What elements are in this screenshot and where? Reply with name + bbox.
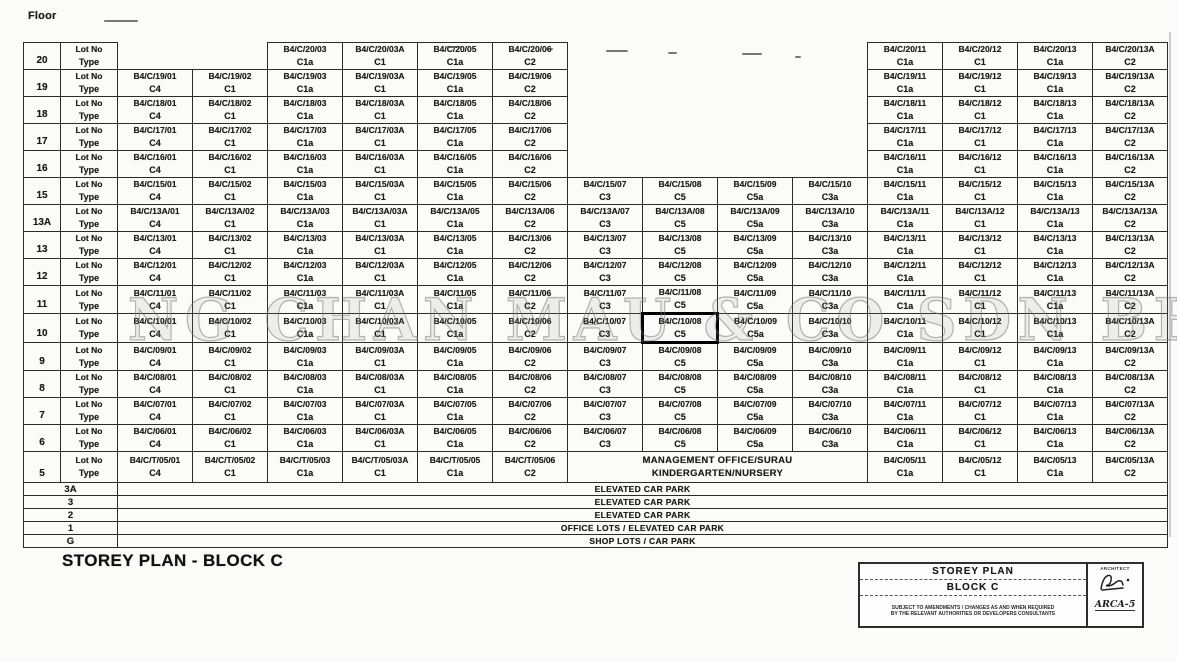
empty-cell — [568, 97, 643, 124]
unit-cell: B4/C/11/07C3 — [568, 286, 643, 314]
lot-number: B4/C/15/07 — [568, 178, 642, 191]
unit-type: C2 — [493, 328, 567, 341]
unit-type: C3a — [793, 438, 867, 451]
unit-type: C1 — [193, 411, 267, 424]
unit-cell: B4/C/06/09C5a — [718, 425, 793, 452]
lot-number: B4/C/07/05 — [418, 398, 492, 411]
unit-cell: B4/C/08/02C1 — [193, 371, 268, 398]
management-line-1: MANAGEMENT OFFICE/SURAU — [568, 454, 867, 467]
unit-type: C3 — [568, 384, 642, 397]
lot-number: B4/C/13A/11 — [868, 205, 942, 218]
unit-type: C2 — [1093, 83, 1167, 96]
floor-row-16: 16Lot NoTypeB4/C/16/01C4B4/C/16/02C1B4/C… — [24, 151, 1168, 178]
unit-cell: B4/C/06/13C1a — [1018, 425, 1093, 452]
lot-number: B4/C/17/01 — [118, 124, 192, 137]
unit-cell: B4/C/19/13AC2 — [1093, 70, 1168, 97]
unit-type: C1a — [1018, 218, 1092, 231]
floor-number-cell: 10 — [24, 314, 61, 343]
lot-number: B4/C/18/13A — [1093, 97, 1167, 110]
lot-number: B4/C/10/09 — [719, 315, 792, 328]
unit-cell: B4/C/07/11C1a — [868, 398, 943, 425]
lot-number: B4/C/13/13 — [1018, 232, 1092, 245]
floor-number-cell: 17 — [24, 124, 61, 151]
lot-number: B4/C/18/03 — [268, 97, 342, 110]
scan-mark — [104, 20, 138, 22]
lot-number: B4/C/09/02 — [193, 344, 267, 357]
lot-number: B4/C/06/03 — [268, 425, 342, 438]
unit-type: C1 — [343, 218, 417, 231]
unit-cell: B4/C/T/05/03AC1 — [343, 452, 418, 483]
unit-type: C1a — [418, 56, 492, 69]
unit-cell: B4/C/09/03AC1 — [343, 343, 418, 371]
unit-type: C4 — [118, 467, 192, 480]
empty-cell — [793, 70, 868, 97]
floor-number-cell: 16 — [24, 151, 61, 178]
unit-cell: B4/C/20/11C1a — [868, 43, 943, 70]
unit-cell: B4/C/06/10C3a — [793, 425, 868, 452]
unit-cell: B4/C/13/01C4 — [118, 232, 193, 259]
band-row-3A: 3AELEVATED CAR PARK — [24, 483, 1168, 496]
unit-cell: B4/C/08/03C1a — [268, 371, 343, 398]
lot-number: B4/C/10/11 — [868, 315, 942, 328]
unit-type: C5 — [643, 218, 717, 231]
unit-type: C1a — [1018, 300, 1092, 313]
unit-cell: B4/C/09/02C1 — [193, 343, 268, 371]
unit-cell: B4/C/20/13C1a — [1018, 43, 1093, 70]
lot-number: B4/C/13/11 — [868, 232, 942, 245]
unit-type: C2 — [1093, 218, 1167, 231]
lot-number: B4/C/06/05 — [418, 425, 492, 438]
lot-number: B4/C/12/03 — [268, 259, 342, 272]
unit-type: C1 — [943, 328, 1017, 341]
lot-number: B4/C/13/12 — [943, 232, 1017, 245]
unit-type: C1a — [418, 411, 492, 424]
unit-type: C1 — [943, 438, 1017, 451]
lot-number: B4/C/17/12 — [943, 124, 1017, 137]
lot-no-label: Lot No — [61, 124, 117, 137]
unit-cell: B4/C/15/02C1 — [193, 178, 268, 205]
unit-cell: B4/C/15/10C3a — [793, 178, 868, 205]
scan-mark — [795, 56, 801, 58]
unit-cell: B4/C/07/13AC2 — [1093, 398, 1168, 425]
lot-number: B4/C/13/03 — [268, 232, 342, 245]
scan-mark — [606, 50, 628, 52]
unit-cell: B4/C/09/05C1a — [418, 343, 493, 371]
unit-cell: B4/C/18/05C1a — [418, 97, 493, 124]
unit-type: C5 — [643, 438, 717, 451]
type-label: Type — [61, 164, 117, 177]
unit-type: C1a — [868, 137, 942, 150]
unit-cell: B4/C/13A/11C1a — [868, 205, 943, 232]
lot-number: B4/C/10/07 — [568, 315, 641, 328]
lot-number: B4/C/10/03A — [343, 315, 417, 328]
lot-number: B4/C/10/10 — [793, 315, 867, 328]
lot-number: B4/C/19/06 — [493, 70, 567, 83]
lot-number: B4/C/08/05 — [418, 371, 492, 384]
lot-number: B4/C/07/10 — [793, 398, 867, 411]
unit-type: C2 — [1093, 272, 1167, 285]
lot-number: B4/C/19/05 — [418, 70, 492, 83]
lot-number: B4/C/13A/10 — [793, 205, 867, 218]
lot-number: B4/C/13/07 — [568, 232, 642, 245]
storey-table-body: 20Lot NoTypeB4/C/20/03C1aB4/C/20/03AC1B4… — [24, 43, 1168, 548]
architect-signature-icon — [1097, 572, 1133, 599]
unit-cell: B4/C/15/03C1a — [268, 178, 343, 205]
lot-number: B4/C/10/13A — [1093, 315, 1167, 328]
unit-cell: B4/C/08/05C1a — [418, 371, 493, 398]
lot-number: B4/C/T/05/03A — [343, 454, 417, 467]
unit-cell: B4/C/16/13AC2 — [1093, 151, 1168, 178]
unit-type: C1 — [343, 83, 417, 96]
lot-number: B4/C/11/12 — [943, 287, 1017, 300]
empty-cell — [568, 124, 643, 151]
unit-type: C5 — [643, 191, 717, 204]
lot-number: B4/C/16/06 — [493, 151, 567, 164]
lot-no-label: Lot No — [61, 70, 117, 83]
unit-type: C1a — [868, 245, 942, 258]
band-label: SHOP LOTS / CAR PARK — [118, 535, 1168, 548]
unit-cell: B4/C/19/12C1 — [943, 70, 1018, 97]
lot-number: B4/C/09/01 — [118, 344, 192, 357]
lot-number: B4/C/06/06 — [493, 425, 567, 438]
lot-number: B4/C/08/06 — [493, 371, 567, 384]
lot-number: B4/C/05/13 — [1018, 454, 1092, 467]
unit-type: C1a — [268, 56, 342, 69]
unit-cell: B4/C/11/05C1a — [418, 286, 493, 314]
unit-type: C2 — [493, 137, 567, 150]
unit-cell: B4/C/08/10C3a — [793, 371, 868, 398]
unit-cell: B4/C/13A/03AC1 — [343, 205, 418, 232]
unit-cell: B4/C/05/12C1 — [943, 452, 1018, 483]
floor-row-13A: 13ALot NoTypeB4/C/13A/01C4B4/C/13A/02C1B… — [24, 205, 1168, 232]
unit-type: C2 — [1093, 137, 1167, 150]
unit-cell: B4/C/17/01C4 — [118, 124, 193, 151]
empty-cell — [643, 97, 718, 124]
lot-number: B4/C/11/05 — [418, 287, 492, 300]
unit-type: C1a — [418, 137, 492, 150]
row-labels-cell: Lot NoType — [61, 398, 118, 425]
unit-type: C2 — [493, 191, 567, 204]
unit-type: C1a — [868, 218, 942, 231]
unit-type: C1a — [418, 328, 492, 341]
floor-number-cell: 13A — [24, 205, 61, 232]
lot-number: B4/C/16/03 — [268, 151, 342, 164]
unit-cell: B4/C/18/12C1 — [943, 97, 1018, 124]
unit-type: C2 — [1093, 357, 1167, 370]
unit-cell: B4/C/06/03C1a — [268, 425, 343, 452]
lot-number: B4/C/11/07 — [568, 287, 642, 300]
unit-type: C3a — [793, 218, 867, 231]
unit-cell: B4/C/16/05C1a — [418, 151, 493, 178]
lot-number: B4/C/20/13 — [1018, 43, 1092, 56]
unit-cell: B4/C/07/10C3a — [793, 398, 868, 425]
unit-type: C1 — [193, 83, 267, 96]
title-block: STOREY PLAN BLOCK C SUBJECT TO AMENDMENT… — [858, 562, 1144, 628]
unit-type: C1a — [268, 357, 342, 370]
unit-type: C4 — [118, 411, 192, 424]
unit-type: C1a — [868, 357, 942, 370]
floor-row-10: 10Lot NoTypeB4/C/10/01C4B4/C/10/02C1B4/C… — [24, 314, 1168, 343]
lot-number: B4/C/17/05 — [418, 124, 492, 137]
unit-cell: B4/C/08/07C3 — [568, 371, 643, 398]
lot-number: B4/C/08/07 — [568, 371, 642, 384]
unit-type: C1 — [343, 328, 417, 341]
unit-type: C5 — [643, 272, 717, 285]
unit-type: C1 — [193, 245, 267, 258]
unit-cell: B4/C/07/03C1a — [268, 398, 343, 425]
type-label: Type — [61, 56, 117, 69]
unit-type: C2 — [1093, 56, 1167, 69]
unit-cell: B4/C/T/05/01C4 — [118, 452, 193, 483]
unit-type: C2 — [1093, 110, 1167, 123]
lot-number: B4/C/T/05/06 — [493, 454, 567, 467]
unit-cell: B4/C/16/03C1a — [268, 151, 343, 178]
unit-type: C1a — [868, 164, 942, 177]
lot-no-label: Lot No — [61, 425, 117, 438]
lot-number: B4/C/11/08 — [643, 286, 717, 299]
lot-number: B4/C/15/13 — [1018, 178, 1092, 191]
unit-type: C5 — [643, 411, 717, 424]
floor-number-cell: 9 — [24, 343, 61, 371]
unit-cell: B4/C/15/13C1a — [1018, 178, 1093, 205]
unit-type: C1 — [193, 300, 267, 313]
unit-cell: B4/C/08/01C4 — [118, 371, 193, 398]
unit-type: C1a — [268, 384, 342, 397]
type-label: Type — [61, 357, 117, 370]
architect-code: ARCA-5 — [1095, 599, 1136, 611]
lot-number: B4/C/18/05 — [418, 97, 492, 110]
title-block-note-2: BY THE RELEVANT AUTHORITIES OR DEVELOPER… — [860, 611, 1086, 617]
unit-type: C5a — [718, 191, 792, 204]
unit-cell: B4/C/11/13C1a — [1018, 286, 1093, 314]
floor-number-cell: 1 — [24, 522, 118, 535]
lot-number: B4/C/06/11 — [868, 425, 942, 438]
unit-cell: B4/C/17/13C1a — [1018, 124, 1093, 151]
unit-cell: B4/C/15/12C1 — [943, 178, 1018, 205]
empty-cell — [568, 151, 643, 178]
floor-number-cell: 5 — [24, 452, 61, 483]
lot-number: B4/C/15/10 — [793, 178, 867, 191]
unit-cell: B4/C/09/10C3a — [793, 343, 868, 371]
floor-number-cell: 3 — [24, 496, 118, 509]
unit-type: C1 — [193, 164, 267, 177]
unit-type: C5a — [718, 357, 792, 370]
lot-number: B4/C/15/09 — [718, 178, 792, 191]
unit-cell: B4/C/19/13C1a — [1018, 70, 1093, 97]
unit-cell: B4/C/13A/09C5a — [718, 205, 793, 232]
lot-number: B4/C/13A/13A — [1093, 205, 1167, 218]
unit-type: C1 — [943, 467, 1017, 480]
unit-type: C2 — [1093, 467, 1167, 480]
band-label: ELEVATED CAR PARK — [118, 496, 1168, 509]
unit-type: C2 — [1093, 191, 1167, 204]
unit-type: C3a — [793, 300, 867, 313]
unit-cell: B4/C/09/12C1 — [943, 343, 1018, 371]
unit-type: C2 — [1093, 384, 1167, 397]
unit-type: C4 — [118, 357, 192, 370]
lot-number: B4/C/17/02 — [193, 124, 267, 137]
unit-type: C1 — [943, 218, 1017, 231]
row-labels-cell: Lot NoType — [61, 70, 118, 97]
lot-number: B4/C/06/07 — [568, 425, 642, 438]
empty-cell — [718, 124, 793, 151]
unit-cell: B4/C/09/13C1a — [1018, 343, 1093, 371]
empty-cell — [568, 43, 643, 70]
lot-number: B4/C/06/01 — [118, 425, 192, 438]
unit-cell: B4/C/13/12C1 — [943, 232, 1018, 259]
lot-number: B4/C/20/05 — [418, 43, 492, 56]
unit-type: C1 — [943, 110, 1017, 123]
row-labels-cell: Lot NoType — [61, 452, 118, 483]
floor-row-9: 9Lot NoTypeB4/C/09/01C4B4/C/09/02C1B4/C/… — [24, 343, 1168, 371]
unit-cell: B4/C/18/02C1 — [193, 97, 268, 124]
lot-number: B4/C/13A/12 — [943, 205, 1017, 218]
lot-number: B4/C/08/13 — [1018, 371, 1092, 384]
lot-number: B4/C/20/03 — [268, 43, 342, 56]
unit-cell: B4/C/06/08C5 — [643, 425, 718, 452]
unit-cell: B4/C/16/01C4 — [118, 151, 193, 178]
unit-cell: B4/C/11/01C4 — [118, 286, 193, 314]
lot-number: B4/C/19/02 — [193, 70, 267, 83]
unit-type: C1 — [343, 245, 417, 258]
lot-number: B4/C/07/01 — [118, 398, 192, 411]
empty-cell — [718, 43, 793, 70]
unit-cell: B4/C/T/05/05C1a — [418, 452, 493, 483]
unit-cell: B4/C/15/09C5a — [718, 178, 793, 205]
unit-cell: B4/C/07/12C1 — [943, 398, 1018, 425]
lot-number: B4/C/10/06 — [493, 315, 567, 328]
unit-type: C5 — [643, 299, 717, 312]
lot-number: B4/C/08/03A — [343, 371, 417, 384]
management-line-2: KINDERGARTEN/NURSERY — [568, 467, 867, 480]
unit-type: C1 — [193, 328, 267, 341]
unit-type: C1a — [1018, 438, 1092, 451]
unit-cell: B4/C/13/07C3 — [568, 232, 643, 259]
unit-type: C1a — [268, 438, 342, 451]
unit-cell: B4/C/17/11C1a — [868, 124, 943, 151]
unit-cell: B4/C/15/13AC2 — [1093, 178, 1168, 205]
unit-cell: B4/C/08/08C5 — [643, 371, 718, 398]
lot-number: B4/C/17/03A — [343, 124, 417, 137]
lot-number: B4/C/17/13 — [1018, 124, 1092, 137]
unit-cell: B4/C/09/03C1a — [268, 343, 343, 371]
unit-cell: B4/C/09/13AC2 — [1093, 343, 1168, 371]
lot-number: B4/C/11/10 — [793, 287, 867, 300]
unit-cell: B4/C/19/03AC1 — [343, 70, 418, 97]
unit-type: C1a — [418, 164, 492, 177]
unit-cell: B4/C/10/03C1a — [268, 314, 343, 343]
unit-type: C2 — [493, 438, 567, 451]
unit-type: C1 — [193, 218, 267, 231]
unit-type: C1 — [343, 56, 417, 69]
lot-number: B4/C/12/11 — [868, 259, 942, 272]
unit-type: C1a — [868, 438, 942, 451]
floor-number-cell: 19 — [24, 70, 61, 97]
lot-number: B4/C/08/01 — [118, 371, 192, 384]
unit-cell: B4/C/12/11C1a — [868, 259, 943, 286]
row-labels-cell: Lot NoType — [61, 286, 118, 314]
empty-cell — [793, 43, 868, 70]
floor-row-13: 13Lot NoTypeB4/C/13/01C4B4/C/13/02C1B4/C… — [24, 232, 1168, 259]
unit-cell: B4/C/16/03AC1 — [343, 151, 418, 178]
type-label: Type — [61, 411, 117, 424]
lot-number: B4/C/18/06 — [493, 97, 567, 110]
unit-type: C3 — [568, 300, 642, 313]
lot-number: B4/C/07/08 — [643, 398, 717, 411]
unit-type: C1 — [343, 384, 417, 397]
unit-type: C1a — [868, 467, 942, 480]
lot-number: B4/C/19/01 — [118, 70, 192, 83]
unit-cell: B4/C/13A/13AC2 — [1093, 205, 1168, 232]
unit-cell: B4/C/13/06C2 — [493, 232, 568, 259]
unit-type: C3 — [568, 328, 641, 341]
unit-type: C5 — [644, 328, 716, 341]
unit-cell: B4/C/08/09C5a — [718, 371, 793, 398]
unit-cell: B4/C/10/02C1 — [193, 314, 268, 343]
unit-cell: B4/C/18/01C4 — [118, 97, 193, 124]
lot-no-label: Lot No — [61, 315, 117, 328]
unit-type: C3 — [568, 357, 642, 370]
lot-number: B4/C/12/01 — [118, 259, 192, 272]
empty-cell — [718, 151, 793, 178]
unit-type: C1a — [268, 164, 342, 177]
unit-type: C3 — [568, 272, 642, 285]
lot-number: B4/C/12/02 — [193, 259, 267, 272]
row-labels-cell: Lot NoType — [61, 259, 118, 286]
unit-cell: B4/C/19/11C1a — [868, 70, 943, 97]
empty-cell — [793, 97, 868, 124]
lot-number: B4/C/07/06 — [493, 398, 567, 411]
unit-cell: B4/C/06/05C1a — [418, 425, 493, 452]
unit-type: C1a — [868, 110, 942, 123]
lot-number: B4/C/06/10 — [793, 425, 867, 438]
unit-type: C3a — [793, 357, 867, 370]
lot-number: B4/C/15/11 — [868, 178, 942, 191]
lot-number: B4/C/16/03A — [343, 151, 417, 164]
unit-type: C3 — [568, 245, 642, 258]
unit-cell: B4/C/17/12C1 — [943, 124, 1018, 151]
empty-cell — [643, 151, 718, 178]
unit-type: C5a — [718, 300, 792, 313]
lot-number: B4/C/06/08 — [643, 425, 717, 438]
unit-cell: B4/C/10/13AC2 — [1093, 314, 1168, 343]
unit-cell: B4/C/09/08C5 — [643, 343, 718, 371]
unit-cell: B4/C/08/13AC2 — [1093, 371, 1168, 398]
floor-row-6: 6Lot NoTypeB4/C/06/01C4B4/C/06/02C1B4/C/… — [24, 425, 1168, 452]
unit-cell: B4/C/06/02C1 — [193, 425, 268, 452]
floor-row-15: 15Lot NoTypeB4/C/15/01C4B4/C/15/02C1B4/C… — [24, 178, 1168, 205]
lot-number: B4/C/12/06 — [493, 259, 567, 272]
unit-cell: B4/C/11/13AC2 — [1093, 286, 1168, 314]
unit-type: C1a — [868, 56, 942, 69]
unit-cell: B4/C/07/08C5 — [643, 398, 718, 425]
unit-type: C5a — [718, 218, 792, 231]
lot-number: B4/C/18/11 — [868, 97, 942, 110]
unit-type: C5a — [718, 411, 792, 424]
lot-number: B4/C/17/11 — [868, 124, 942, 137]
unit-cell: B4/C/16/12C1 — [943, 151, 1018, 178]
unit-type: C1a — [268, 191, 342, 204]
unit-cell: B4/C/07/05C1a — [418, 398, 493, 425]
lot-number: B4/C/13A/01 — [118, 205, 192, 218]
unit-type: C2 — [493, 218, 567, 231]
plan-title: STOREY PLAN - BLOCK C — [62, 551, 283, 571]
unit-type: C3a — [793, 191, 867, 204]
unit-type: C2 — [1093, 300, 1167, 313]
lot-number: B4/C/18/02 — [193, 97, 267, 110]
unit-cell: B4/C/16/06C2 — [493, 151, 568, 178]
lot-number: B4/C/15/03A — [343, 178, 417, 191]
